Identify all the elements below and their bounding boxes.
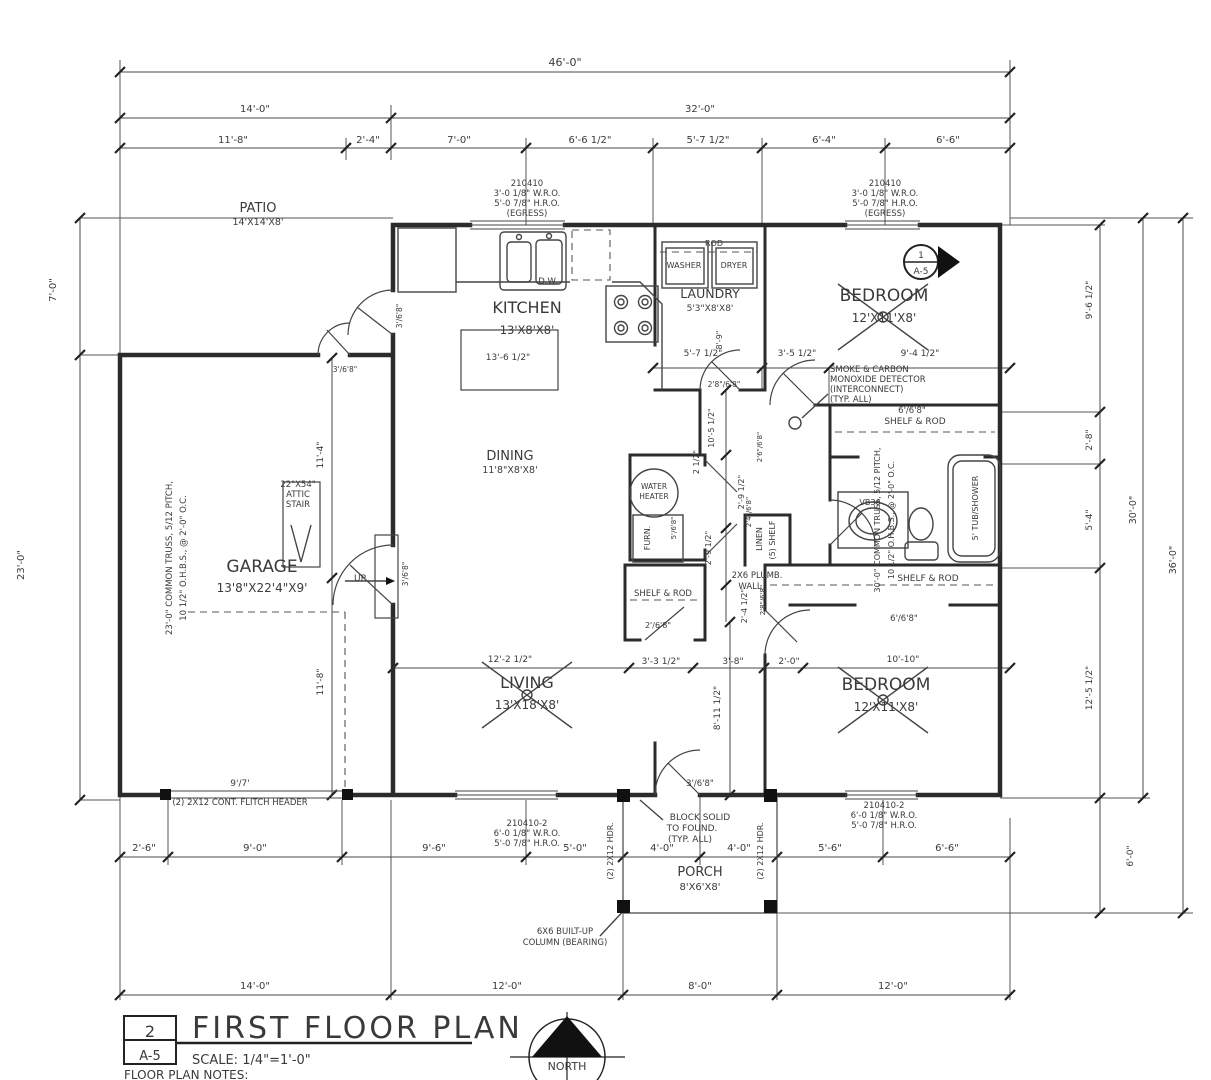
range bbox=[606, 286, 658, 342]
dishwasher bbox=[572, 230, 610, 280]
plan-label: 22"X54" bbox=[280, 480, 315, 490]
plan-label: LAUNDRY bbox=[680, 286, 740, 301]
plan-label: 3'/6'8" bbox=[686, 779, 714, 789]
plan-label: STAIR bbox=[286, 500, 310, 510]
plan-label: (2) 2X12 CONT. FLITCH HEADER bbox=[172, 798, 307, 808]
plan-label: 10 1/2" O.H.B.S., @ 2'-0" O.C. bbox=[887, 461, 896, 579]
plan-label: SMOKE & CARBON bbox=[830, 365, 909, 375]
labels-layer: 46'-0"14'-0"32'-0"11'-8"2'-4"7'-0"6'-6 1… bbox=[16, 56, 1179, 992]
plan-label: (5) SHELF bbox=[768, 520, 777, 559]
plan-label: 210410-2 bbox=[507, 819, 548, 829]
plan-label: WALL bbox=[738, 582, 761, 592]
plan-label: 11'-8" bbox=[316, 668, 326, 695]
plan-label: 5'-7 1/2" bbox=[684, 349, 723, 359]
plan-label: 2'-8" bbox=[1085, 429, 1095, 450]
plan-label: 12'X11'X8' bbox=[852, 311, 917, 325]
plan-label: 13'8"X22'4"X9' bbox=[217, 581, 308, 595]
plan-label: 3'/6'8" bbox=[333, 365, 357, 374]
plan-label: 8'-0" bbox=[688, 981, 712, 992]
north-needle bbox=[532, 1016, 602, 1057]
plan-label: 2'-9 1/2" bbox=[704, 531, 713, 565]
plan-label: 5' TUB/SHOWER bbox=[971, 475, 980, 540]
plan-label: 8'-9" bbox=[715, 331, 724, 350]
plan-label: 5'-0 7/8" H.R.O. bbox=[494, 199, 560, 209]
plan-label: TO FOUND. bbox=[666, 824, 718, 834]
plan-label: PORCH bbox=[677, 865, 722, 880]
plan-label: 3'-0 1/8" W.R.O. bbox=[494, 189, 561, 199]
plan-label: 3'/6'8" bbox=[401, 562, 410, 586]
plan-label: 5'-0 7/8" H.R.O. bbox=[851, 821, 917, 831]
plan-label: 12'-0" bbox=[878, 981, 908, 992]
plan-label: 2'6"/6'8" bbox=[756, 432, 764, 462]
drawing-title: FIRST FLOOR PLAN bbox=[192, 1011, 523, 1046]
plan-label: 3'-3 1/2" bbox=[642, 657, 681, 667]
plan-label: 3'/6'8" bbox=[395, 304, 404, 328]
plan-label: SHELF & ROD bbox=[884, 417, 945, 427]
plan-label: 12'-5 1/2" bbox=[1085, 666, 1095, 710]
plan-label: 9'/7' bbox=[230, 779, 249, 789]
plan-label: 14'-0" bbox=[240, 981, 270, 992]
plan-label: 5'-0 7/8" H.R.O. bbox=[852, 199, 918, 209]
plan-label: 10'-10" bbox=[887, 655, 920, 665]
plan-label: 10 1/2" O.H.B.S., @ 2'-0" O.C. bbox=[179, 495, 189, 621]
plan-label: GARAGE bbox=[226, 557, 297, 577]
plan-label: 2'-0" bbox=[778, 657, 799, 667]
plan-label: WASHER bbox=[667, 261, 702, 270]
plan-label: (INTERCONNECT) bbox=[830, 385, 903, 395]
plan-label: DINING bbox=[486, 449, 533, 464]
plan-label: 13'X18'X8' bbox=[495, 698, 560, 712]
plan-label: 12'-0" bbox=[492, 981, 522, 992]
plan-label: ATTIC bbox=[286, 490, 310, 500]
plan-label: SHELF & ROD bbox=[634, 589, 692, 599]
up-arrow bbox=[386, 577, 395, 585]
plan-label: 14'-0" bbox=[240, 104, 270, 115]
plan-label: 2'8"/6'8" bbox=[708, 380, 741, 389]
plan-label: 13'X8'X8' bbox=[500, 323, 555, 337]
plan-label: 3'-0 1/8" W.R.O. bbox=[852, 189, 919, 199]
plan-label: 32'-0" bbox=[685, 104, 715, 115]
plan-label: 5'/6'8" bbox=[670, 517, 678, 540]
plan-label: ROD bbox=[705, 239, 723, 248]
plan-label: LINEN bbox=[755, 527, 764, 551]
plan-label: 5'-0 7/8" H.R.O. bbox=[494, 839, 560, 849]
plan-label: (TYP. ALL) bbox=[830, 395, 872, 405]
toilet bbox=[909, 508, 933, 540]
plan-label: 6'-6 1/2" bbox=[569, 135, 612, 146]
plan-label: 8'X6'X8' bbox=[679, 882, 720, 893]
plan-label: 12'-2 1/2" bbox=[488, 655, 532, 665]
plan-label: 2'-4" bbox=[356, 135, 380, 146]
plan-label: 6'-0" bbox=[1126, 845, 1136, 866]
plan-label: 3'-8" bbox=[722, 657, 743, 667]
north-label: NORTH bbox=[548, 1060, 587, 1073]
interior-partitions bbox=[625, 225, 1000, 795]
sheet-number: A-5 bbox=[139, 1049, 161, 1064]
smoke-detector-symbol bbox=[789, 417, 801, 429]
plan-label: BLOCK SOLID bbox=[670, 813, 730, 823]
plan-label: 2'/6'8" bbox=[645, 621, 671, 630]
plan-label: 6'/6'8" bbox=[898, 406, 926, 416]
plan-label: DRYER bbox=[721, 261, 748, 270]
plan-label: 6'-6" bbox=[935, 843, 959, 854]
detail-marker-number: 1 bbox=[918, 251, 924, 261]
plan-label: 5'-7 1/2" bbox=[687, 135, 730, 146]
plan-label: 13'-6 1/2" bbox=[486, 353, 530, 363]
plan-label: 6X6 BUILT-UP bbox=[537, 927, 593, 937]
plan-label: 36'-0" bbox=[1168, 546, 1179, 575]
refrigerator bbox=[398, 228, 456, 292]
plan-label: 5'3"X8'X8' bbox=[687, 304, 734, 314]
plan-label: 5'-0" bbox=[563, 843, 587, 854]
plan-label: COLUMN (BEARING) bbox=[523, 938, 608, 948]
plan-label: BEDROOM bbox=[842, 675, 931, 695]
title-block: 2 A-5 FIRST FLOOR PLAN SCALE: 1/4"=1'-0"… bbox=[124, 1011, 523, 1080]
detail-marker: 1 A-5 bbox=[904, 245, 960, 279]
plan-label: 11'-8" bbox=[218, 135, 248, 146]
plan-label: BEDROOM bbox=[840, 286, 929, 306]
floor-plan-sheet: 1 A-5 46'-0"14'-0"32'-0"11'-8"2'-4"7'-0"… bbox=[0, 0, 1211, 1080]
plan-label: 9'-4 1/2" bbox=[901, 349, 940, 359]
detail-marker-sheet: A-5 bbox=[914, 267, 929, 277]
plan-label: 210410 bbox=[869, 179, 901, 189]
plan-label: 5'-6" bbox=[818, 843, 842, 854]
plan-label: 6'-4" bbox=[812, 135, 836, 146]
plan-label: 8'-11 1/2" bbox=[713, 686, 723, 730]
plan-label: 6'/6'8" bbox=[890, 614, 918, 624]
plan-label: WATER bbox=[641, 482, 667, 491]
plan-label: 2X6 PLUMB. bbox=[732, 571, 783, 581]
plan-label: 9'-6" bbox=[422, 843, 446, 854]
plan-label: 2'4"/6'8" bbox=[745, 497, 753, 527]
plan-label: 6'-0 1/8" W.R.O. bbox=[494, 829, 561, 839]
drawing-scale: SCALE: 1/4"=1'-0" bbox=[192, 1053, 311, 1068]
plan-label: 11'8"X8'X8' bbox=[482, 465, 537, 476]
plan-label: 7'-0" bbox=[447, 135, 471, 146]
plan-label: 4'-0" bbox=[727, 843, 751, 854]
plan-label: 46'-0" bbox=[548, 56, 581, 69]
plan-label: D.W. bbox=[538, 277, 557, 287]
plan-label: 30'-0" bbox=[1128, 496, 1139, 525]
plan-label: PATIO bbox=[240, 201, 277, 216]
plan-label: 10'-5 1/2" bbox=[707, 408, 716, 447]
plan-label: 9'-0" bbox=[243, 843, 267, 854]
plan-label: SHELF & ROD bbox=[897, 574, 958, 584]
plan-label: 9'-6 1/2" bbox=[1085, 281, 1095, 320]
plan-label: 210410-2 bbox=[864, 801, 905, 811]
plan-label: 6'-6" bbox=[936, 135, 960, 146]
plan-label: (2) 2X12 HDR. bbox=[756, 822, 765, 879]
plan-label: HEATER bbox=[639, 492, 668, 501]
plan-label: UP bbox=[354, 574, 367, 584]
plan-label: 5'-4" bbox=[1085, 509, 1095, 530]
plan-label: FURN. bbox=[643, 526, 652, 551]
detail-number: 2 bbox=[145, 1022, 155, 1041]
plan-label: 12'X11'X8' bbox=[854, 700, 919, 714]
plan-label: 14'X14'X8' bbox=[232, 217, 283, 228]
plan-label: 30'-0" COMMON TRUSS, 5/12 PITCH, bbox=[873, 448, 882, 593]
plan-label: 2'-6" bbox=[132, 843, 156, 854]
plan-label: LIVING bbox=[500, 673, 554, 692]
plan-label: (EGRESS) bbox=[865, 209, 906, 219]
plan-label: (TYP. ALL) bbox=[668, 835, 712, 845]
plan-label: 210410 bbox=[511, 179, 543, 189]
plan-label: (2) 2X12 HDR. bbox=[606, 822, 615, 879]
north-arrow: NORTH bbox=[510, 1012, 625, 1080]
plan-label: MONOXIDE DETECTOR bbox=[830, 375, 926, 385]
plan-label: 23'-0" COMMON TRUSS, 5/12 PITCH, bbox=[165, 481, 175, 635]
plan-label: 11'-4" bbox=[316, 441, 326, 468]
plan-label: 3'-5 1/2" bbox=[778, 349, 817, 359]
plan-label: KITCHEN bbox=[492, 298, 561, 317]
plan-label: 23'-0" bbox=[16, 550, 27, 580]
notes-heading: FLOOR PLAN NOTES: bbox=[124, 1068, 248, 1080]
plan-label: 2'-4 1/2" bbox=[740, 589, 749, 623]
plan-label: 7'-0" bbox=[48, 278, 59, 302]
floor-plan-drawing: 1 A-5 46'-0"14'-0"32'-0"11'-8"2'-4"7'-0"… bbox=[0, 0, 1211, 1080]
plan-label: 2 1/2" bbox=[692, 450, 701, 474]
plan-label: 6'-0 1/8" W.R.O. bbox=[851, 811, 918, 821]
plan-label: (EGRESS) bbox=[507, 209, 548, 219]
